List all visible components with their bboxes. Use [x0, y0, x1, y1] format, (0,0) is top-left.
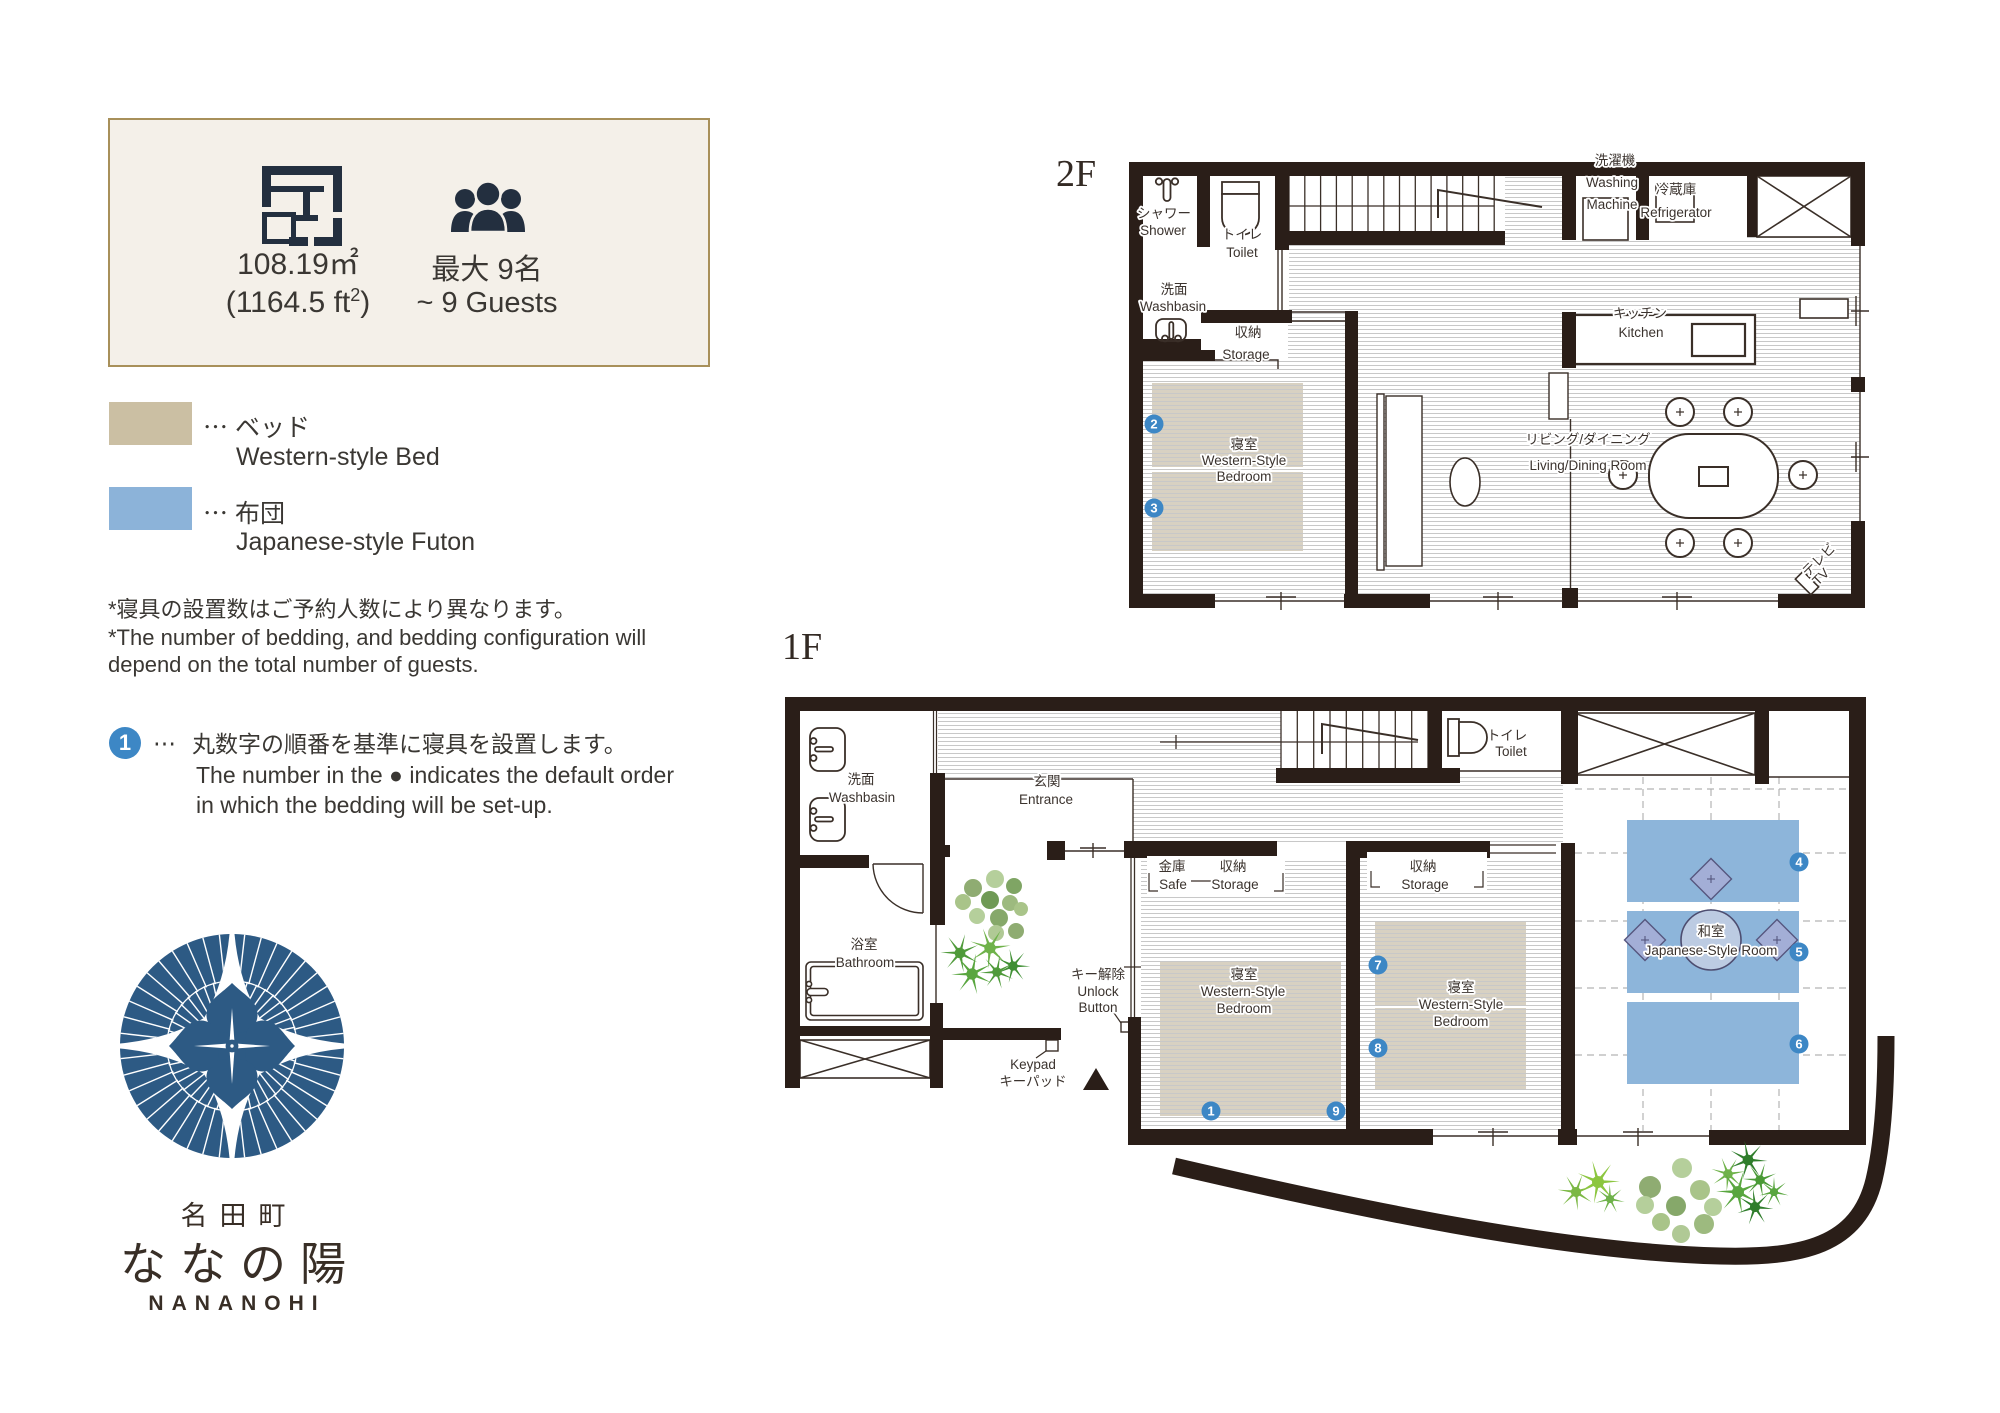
svg-text:Western-Style: Western-Style: [1419, 997, 1504, 1012]
svg-text:Toilet: Toilet: [1226, 245, 1258, 260]
svg-text:洗濯機: 洗濯機: [1595, 153, 1636, 168]
svg-text:9: 9: [1332, 1104, 1339, 1119]
svg-text:Living/Dining Room: Living/Dining Room: [1529, 458, 1646, 473]
svg-text:Japanese-Style Room: Japanese-Style Room: [1645, 943, 1778, 958]
svg-text:玄関: 玄関: [1034, 773, 1061, 789]
svg-text:Bedroom: Bedroom: [1217, 469, 1272, 484]
svg-text:1: 1: [1207, 1104, 1214, 1119]
svg-text:Storage: Storage: [1401, 877, 1448, 892]
svg-text:Shower: Shower: [1140, 223, 1186, 238]
svg-text:Bedroom: Bedroom: [1217, 1001, 1272, 1016]
svg-text:Button: Button: [1078, 1000, 1117, 1015]
svg-text:和室: 和室: [1698, 923, 1725, 939]
svg-text:Entrance: Entrance: [1019, 792, 1073, 807]
svg-text:トイレ: トイレ: [1222, 227, 1263, 242]
svg-text:シャワー: シャワー: [1137, 206, 1191, 221]
svg-text:寝室: 寝室: [1231, 966, 1258, 982]
svg-text:5: 5: [1795, 945, 1802, 960]
svg-text:Unlock: Unlock: [1077, 984, 1119, 999]
svg-text:Washing: Washing: [1586, 175, 1638, 190]
svg-text:Toilet: Toilet: [1495, 744, 1527, 759]
svg-text:収納: 収納: [1410, 859, 1437, 874]
svg-text:収納: 収納: [1220, 859, 1247, 874]
svg-text:Kitchen: Kitchen: [1618, 325, 1663, 340]
svg-text:リビング/ダイニング: リビング/ダイニング: [1525, 432, 1650, 447]
svg-text:冷蔵庫: 冷蔵庫: [1656, 182, 1697, 197]
svg-text:4: 4: [1795, 855, 1803, 870]
svg-text:Storage: Storage: [1211, 877, 1258, 892]
svg-text:洗面: 洗面: [848, 772, 875, 787]
svg-text:Storage: Storage: [1222, 347, 1269, 362]
svg-text:Western-Style: Western-Style: [1202, 453, 1287, 468]
svg-text:3: 3: [1150, 501, 1157, 516]
svg-text:Washbasin: Washbasin: [1140, 299, 1206, 314]
svg-text:キー解除: キー解除: [1071, 967, 1125, 982]
svg-text:Keypad: Keypad: [1010, 1057, 1056, 1072]
svg-text:8: 8: [1374, 1041, 1381, 1056]
svg-text:7: 7: [1374, 958, 1381, 973]
svg-text:洗面: 洗面: [1161, 282, 1188, 297]
svg-text:キッチン: キッチン: [1613, 306, 1667, 321]
svg-text:2F: 2F: [1056, 153, 1096, 195]
svg-text:1F: 1F: [782, 626, 822, 668]
svg-text:浴室: 浴室: [851, 936, 878, 952]
svg-text:キーパッド: キーパッド: [999, 1074, 1066, 1089]
svg-text:Washbasin: Washbasin: [829, 790, 895, 805]
svg-text:寝室: 寝室: [1231, 436, 1258, 452]
svg-text:Western-Style: Western-Style: [1201, 984, 1286, 999]
svg-text:収納: 収納: [1235, 325, 1262, 340]
svg-text:Bedroom: Bedroom: [1434, 1014, 1489, 1029]
svg-text:Refrigerator: Refrigerator: [1640, 205, 1712, 220]
svg-text:2: 2: [1150, 417, 1157, 432]
svg-text:トイレ: トイレ: [1487, 728, 1528, 743]
svg-text:金庫: 金庫: [1159, 859, 1186, 874]
svg-text:Machine: Machine: [1586, 197, 1637, 212]
svg-text:Bathroom: Bathroom: [836, 955, 895, 970]
svg-text:Safe: Safe: [1159, 877, 1187, 892]
svg-text:6: 6: [1795, 1037, 1802, 1052]
svg-text:寝室: 寝室: [1448, 979, 1475, 995]
